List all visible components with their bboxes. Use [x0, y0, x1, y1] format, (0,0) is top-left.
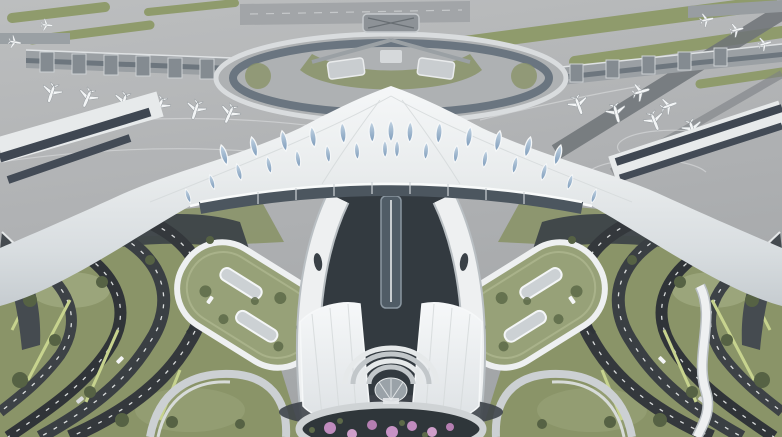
airport-aerial-rendering [0, 0, 782, 437]
crosswalk [383, 398, 399, 404]
runway-band [240, 1, 470, 25]
airport-rendering-canvas [0, 0, 782, 437]
